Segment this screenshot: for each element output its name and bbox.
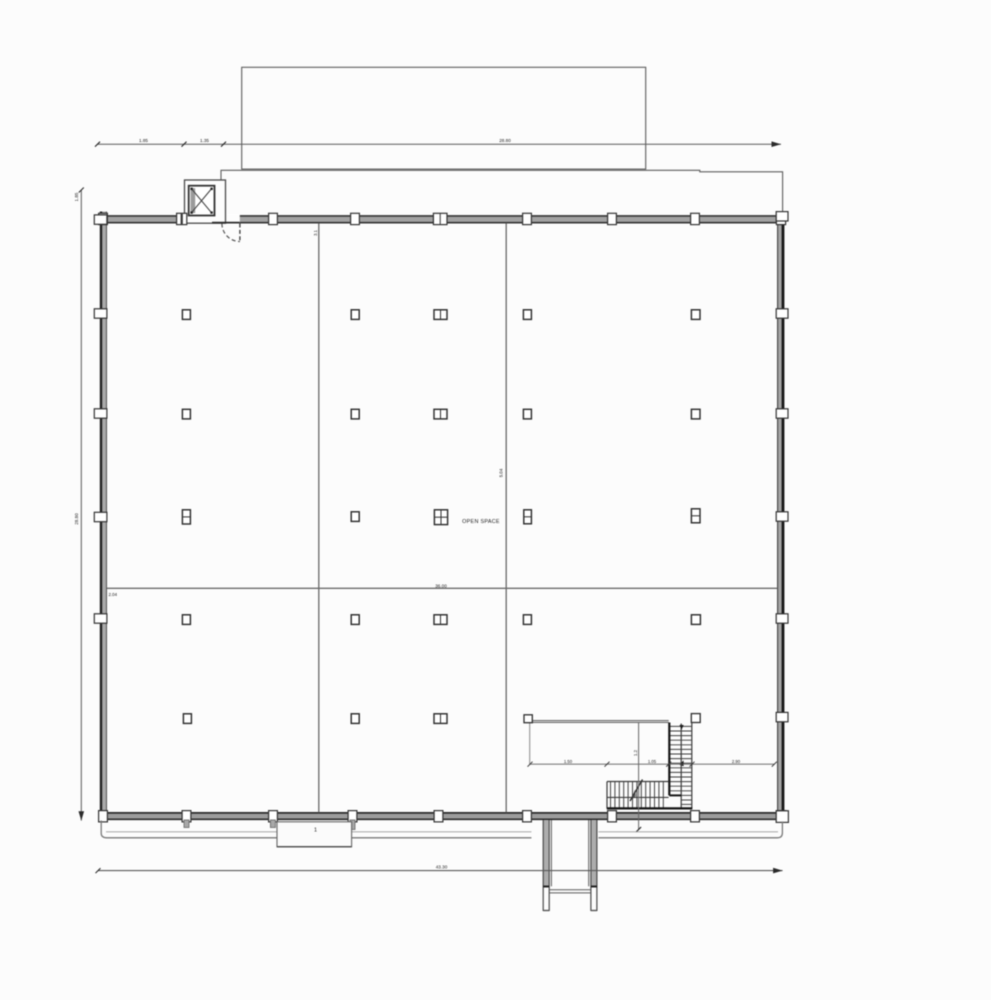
svg-text:1.05: 1.05 [648,759,657,764]
svg-text:1.35: 1.35 [200,138,209,143]
svg-text:28.80: 28.80 [499,138,511,143]
svg-text:2.90: 2.90 [732,759,741,764]
svg-text:2.04: 2.04 [109,592,118,597]
svg-text:1.50: 1.50 [564,759,573,764]
svg-text:43.30: 43.30 [436,865,448,870]
svg-text:28.80: 28.80 [74,513,79,525]
svg-text:36.00: 36.00 [435,584,447,589]
svg-text:1: 1 [314,828,317,834]
svg-text:1.85: 1.85 [139,138,148,143]
svg-text:OPEN SPACE: OPEN SPACE [462,519,500,525]
svg-text:5.04: 5.04 [499,468,504,477]
svg-text:3.1: 3.1 [313,229,318,235]
svg-text:1.85: 1.85 [74,192,79,201]
svg-text:1.2: 1.2 [633,749,638,756]
